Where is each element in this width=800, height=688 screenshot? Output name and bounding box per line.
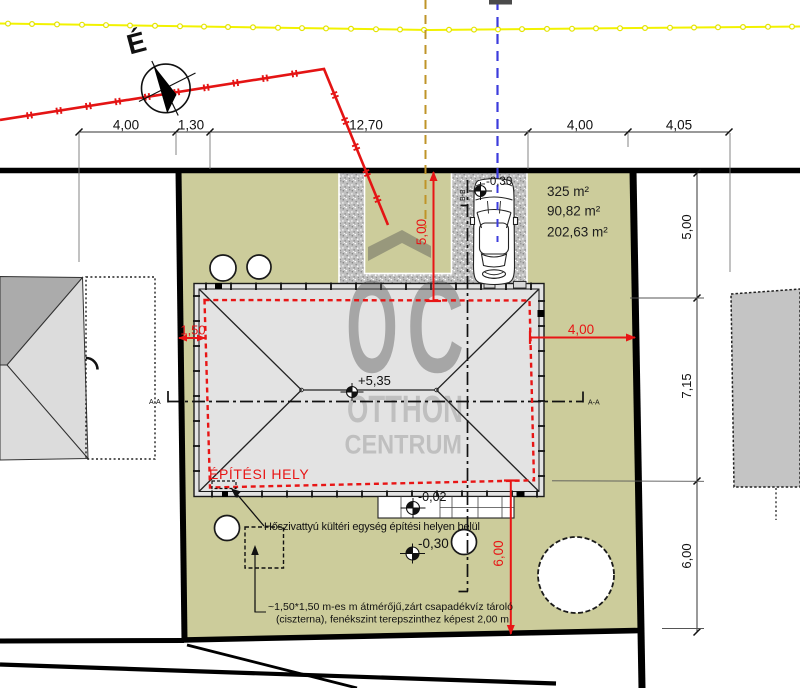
svg-text:1,30: 1,30 xyxy=(178,118,204,133)
svg-text:+5,35: +5,35 xyxy=(358,373,391,388)
svg-text:B-B: B-B xyxy=(460,189,467,201)
svg-text:5,00: 5,00 xyxy=(679,214,694,239)
svg-text:-0,30: -0,30 xyxy=(486,176,512,188)
svg-text:ÉPÍTÉSI HELY: ÉPÍTÉSI HELY xyxy=(209,466,309,482)
svg-text:325 m²: 325 m² xyxy=(547,184,590,199)
svg-text:A-A: A-A xyxy=(149,399,161,406)
svg-text:4,05: 4,05 xyxy=(666,118,692,133)
svg-text:C: C xyxy=(407,253,464,400)
svg-text:1,50: 1,50 xyxy=(180,323,205,338)
svg-text:202,63 m²: 202,63 m² xyxy=(547,225,608,240)
svg-text:90,82 m²: 90,82 m² xyxy=(547,204,601,219)
svg-text:6,00: 6,00 xyxy=(679,543,694,568)
svg-text:7,15: 7,15 xyxy=(679,373,694,398)
svg-text:4,00: 4,00 xyxy=(567,118,593,133)
svg-text:A-A: A-A xyxy=(588,400,600,407)
svg-text:4,00: 4,00 xyxy=(568,322,594,337)
svg-text:6,00: 6,00 xyxy=(491,540,506,566)
svg-text:(ciszterna), fenékszint tereps: (ciszterna), fenékszint terepszinthez ké… xyxy=(276,614,509,626)
svg-text:12,70: 12,70 xyxy=(349,118,383,133)
svg-text:4,00: 4,00 xyxy=(113,118,139,133)
svg-text:5,00: 5,00 xyxy=(414,219,429,245)
svg-text:OTTHON: OTTHON xyxy=(347,389,463,431)
svg-text:~1,50*1,50 m-es m átmérőjű,zár: ~1,50*1,50 m-es m átmérőjű,zárt csapadék… xyxy=(268,601,513,613)
svg-text:Hőszivattyú kültéri egység épí: Hőszivattyú kültéri egység építési helye… xyxy=(264,521,480,533)
svg-text:-0,30: -0,30 xyxy=(418,536,449,551)
svg-text:CENTRUM: CENTRUM xyxy=(345,430,463,460)
svg-text:-0,02: -0,02 xyxy=(418,490,447,504)
